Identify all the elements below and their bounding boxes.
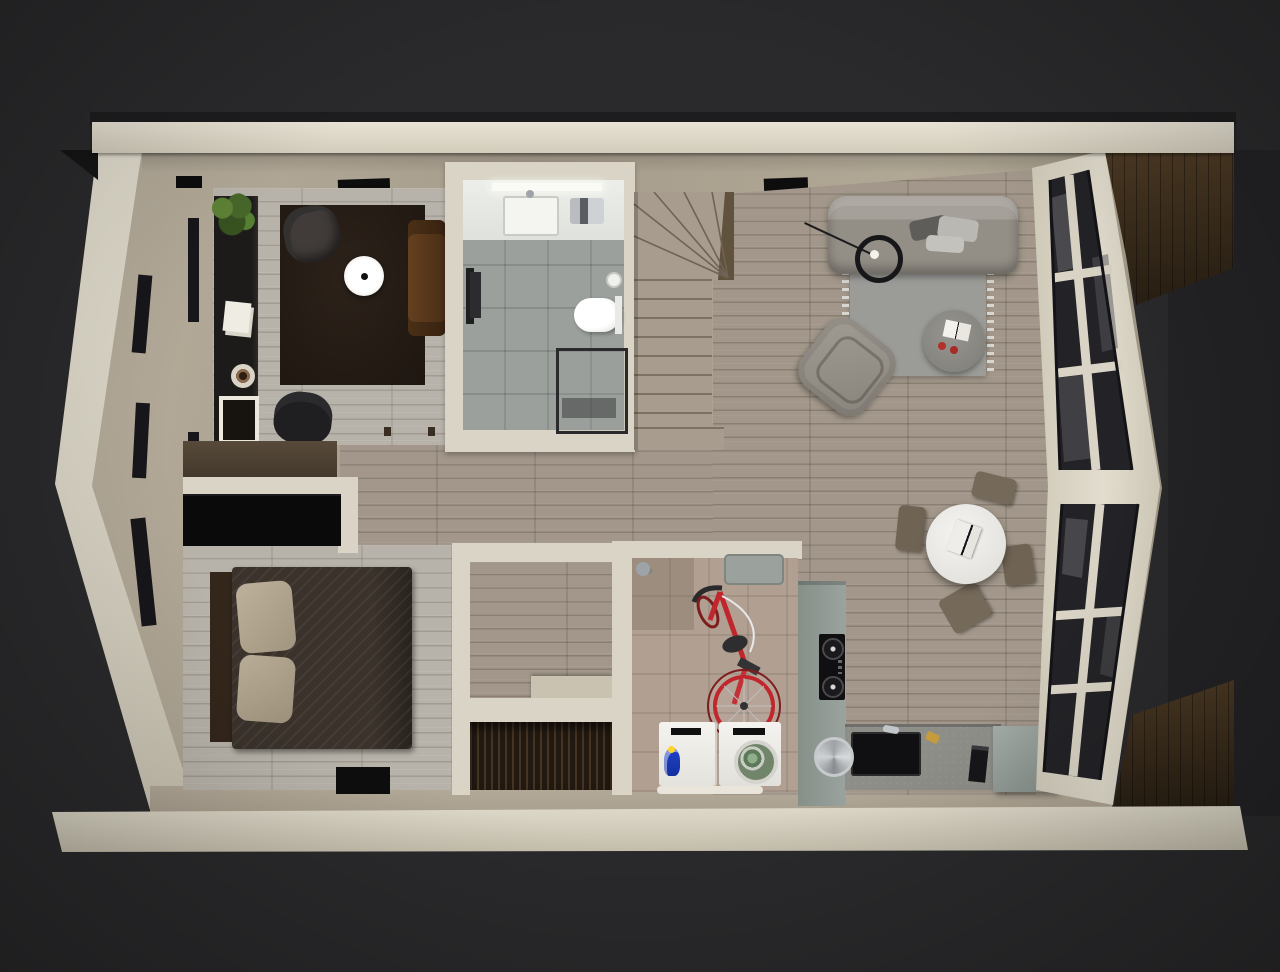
papers [223,301,252,334]
arc-lamp-shade-icon [855,235,903,283]
apple-icon [938,342,946,350]
closet-wall-left [452,543,470,795]
closet-wall-mid [452,698,612,722]
coffee-cup-icon [231,364,255,388]
ceiling-vent-icon [176,176,202,188]
closet-step [531,676,612,700]
kitchen-sink [851,732,921,776]
threshold-strip [657,786,763,794]
bike-saddle [720,632,750,655]
rug-fringe [987,272,994,376]
dryer-door-laundry [734,740,778,784]
slatted-closet [470,722,612,790]
wardrobe [183,494,341,546]
hall-wall-vertical [338,477,358,553]
sink [503,196,559,236]
leather-bench [408,220,446,336]
burner-icon [822,638,844,660]
bike-hub [740,702,748,710]
dryer-vent [733,728,765,735]
vanity-light [492,183,602,191]
winder-staircase [628,192,740,454]
coffee-table [923,310,985,372]
printer [219,396,259,444]
washer-vent [671,728,701,735]
top-eave-band [92,122,1234,153]
bottom-eave-band [50,806,1250,854]
pillow [236,654,296,724]
stair-edge-shadow [634,192,638,450]
round-dish [814,737,854,777]
side-table-center-dot [361,273,368,280]
floor-plan-stage [0,0,1280,972]
window-slit-inner-1 [188,218,199,322]
vanity-accessories [570,198,604,224]
toilet [574,298,620,332]
shower-bench [562,398,616,418]
bottle-cap [668,746,675,753]
sofa-cushion-light [925,235,964,254]
bed-headboard [210,572,234,742]
shower-head-icon [636,562,650,576]
wall-desk [183,441,337,477]
utility-wall-left [612,541,632,795]
apple-icon [950,346,958,354]
door-jamb-mark [428,427,435,436]
burner-icon [822,676,844,698]
toilet-tank [615,296,622,334]
door-mat [336,767,390,794]
closet-wall-top [452,543,630,562]
plant-icon [208,192,256,238]
dining-chair [895,505,927,553]
lamp-bulb-dot [870,250,879,259]
pillow [235,580,297,655]
roof-corner-wedge [60,150,98,180]
shower-enclosure [556,348,628,434]
cooktop-knobs [838,660,842,674]
faucet-icon [526,190,534,198]
door-jamb-mark [384,427,391,436]
toilet-paper-icon [606,272,622,288]
towel [470,272,481,318]
